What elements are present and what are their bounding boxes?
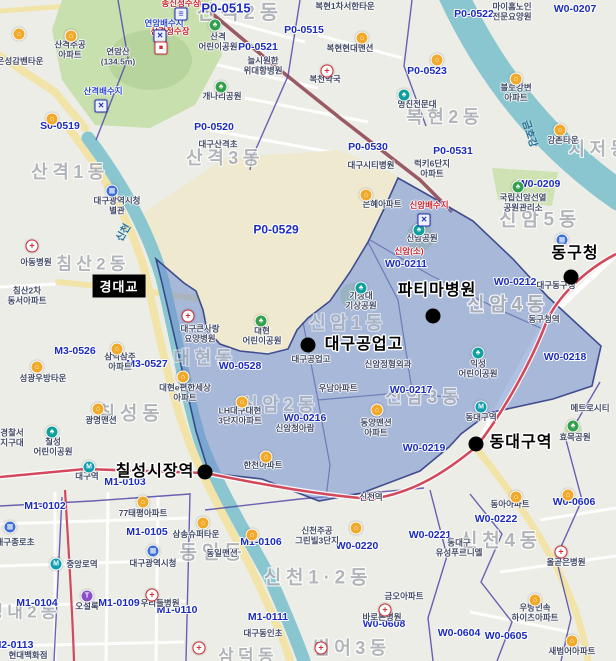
place-label: 신암청아람 — [275, 424, 314, 434]
metro-icon: M — [475, 401, 488, 414]
place-label: 마이홈노인 전문요양원 — [492, 2, 531, 21]
place-label: 익성 어린이공원 — [458, 359, 497, 378]
place-label: 영진전문대 — [397, 100, 436, 110]
district-label: 신암1동 — [309, 313, 387, 333]
apt-icon: ⌂ — [510, 73, 523, 86]
place-label: 동대구 유성푸르니엘 — [436, 538, 483, 557]
apt-icon: ⌂ — [137, 496, 150, 509]
label-layer: 산격2동산격1동산격3동복현2동지저동신암5동신암4동신암1동신암2동신암3동대… — [0, 0, 616, 661]
park-icon: ♣ — [567, 420, 580, 433]
apt-icon: ⌂ — [92, 403, 105, 416]
place-label: 우리들병원 — [140, 599, 179, 609]
place-label: 오설록 — [75, 602, 98, 612]
tpark-icon: ♣ — [46, 426, 59, 439]
place-label: 국립신암선열 공원관리소 — [500, 193, 547, 212]
place-label: 대현e편한세상 아파트 — [159, 383, 211, 402]
store-icon: T — [81, 590, 94, 603]
place-label: 신암(소) — [394, 247, 423, 257]
zone-code-label: W0-0219 — [403, 443, 446, 455]
levels-icon: ≡ — [175, 8, 188, 21]
zone-code-label: W0-0605 — [485, 631, 528, 643]
place-label: 대구시티병원 — [348, 161, 395, 171]
apt-icon: ⌂ — [197, 517, 210, 530]
zone-code-label: W0-0220 — [336, 541, 379, 553]
redbox-icon: ■ — [155, 42, 168, 55]
zone-code-label: M1-0105 — [126, 527, 167, 539]
med-icon: + — [315, 642, 328, 655]
zone-code-label: W0-0222 — [475, 514, 518, 526]
apt-icon: ⌂ — [360, 189, 373, 202]
place-label: 동양맨션 아파트 — [360, 418, 391, 437]
apt-icon: ⌂ — [350, 522, 363, 535]
zone-code-label: W0-0217 — [390, 385, 433, 397]
med-icon: + — [193, 642, 206, 655]
place-label: 산격 어린이공원 — [198, 32, 237, 51]
place-label: 성광우방타운 — [20, 374, 67, 384]
zone-code-label: P0-0522 — [454, 9, 494, 21]
place-label: 77태평아파트 — [119, 509, 168, 519]
apt-icon: ⌂ — [510, 491, 523, 504]
district-label: 삼덕동 — [218, 646, 278, 661]
place-label: 칠성 어린이공원 — [33, 437, 72, 456]
apt-icon: ⌂ — [260, 451, 273, 464]
place-label: 대현 어린이공원 — [242, 326, 281, 345]
metro-icon: M — [50, 558, 63, 571]
district-label: 산격3동 — [186, 148, 264, 168]
place-label: 신천역 — [359, 493, 382, 503]
poi-dot — [564, 270, 579, 285]
med-icon: + — [379, 604, 392, 617]
zone-code-label: M1-0111 — [248, 612, 288, 624]
place-label: 산격주공 아파트 — [54, 40, 85, 59]
place-label: 강촌타운 — [547, 136, 578, 146]
place-label: 대구광역시청 — [130, 559, 177, 569]
poi-dot — [426, 309, 441, 324]
med-icon: + — [26, 240, 39, 253]
poi-label: 칠성시장역 — [116, 463, 195, 481]
zone-code-label: P0-0529 — [253, 223, 298, 236]
apt-icon: ⌂ — [371, 404, 384, 417]
place-label: 삼익삼주 아파트 — [104, 352, 135, 371]
zone-code-label: P0-0530 — [348, 142, 388, 154]
gov-icon: ▦ — [147, 545, 160, 558]
park-icon: ♣ — [255, 315, 268, 328]
map-canvas[interactable]: 산격2동산격1동산격3동복현2동지저동신암5동신암4동신암1동신암2동신암3동대… — [0, 0, 616, 661]
place-label: 은혜아파트 — [362, 200, 401, 210]
place-label: 대구산격초 — [198, 140, 237, 150]
med-icon: + — [146, 589, 159, 602]
place-label: 럭키6단지 아파트 — [414, 159, 450, 178]
place-label: 대구광역시청 별관 — [94, 196, 141, 215]
apt-icon: ⌂ — [356, 32, 369, 45]
apt-icon: ⌂ — [111, 343, 124, 356]
xbox-icon: × — [418, 214, 431, 227]
district-label: 신암5동 — [499, 209, 581, 230]
place-label: 연암산 (134.5m) — [101, 47, 136, 66]
place-label: 광명맨션 — [85, 416, 116, 426]
zone-code-label: P0-0515 — [201, 2, 250, 17]
apt-icon: ⌂ — [246, 529, 259, 542]
place-label: 현대백화점 — [8, 651, 47, 661]
apt-icon: ⌂ — [554, 124, 567, 137]
metro-icon: M — [83, 461, 96, 474]
med-icon: + — [555, 546, 568, 559]
zone-code-label: W0-0528 — [219, 361, 262, 373]
place-label: 개나리공원 — [202, 92, 241, 102]
place-label: 신암정형외과 — [365, 360, 412, 370]
apt-icon: ⌂ — [31, 361, 44, 374]
zone-code-label: M3-0526 — [54, 346, 95, 358]
tpark-icon: ♣ — [472, 347, 485, 360]
apt-icon: ⌂ — [177, 371, 190, 384]
place-label: 대구역 — [75, 472, 98, 482]
gov-icon: ▦ — [106, 185, 119, 198]
place-label: 대구종로초 — [0, 538, 35, 548]
zone-code-label: P0-0521 — [238, 42, 278, 54]
zone-code-label: P0-0515 — [284, 25, 324, 37]
place-label: 신암배수지 — [409, 201, 448, 211]
poi-label: 동구청 — [551, 245, 598, 263]
poi-label: 동대구역 — [490, 434, 553, 452]
apt-icon: ⌂ — [13, 28, 26, 41]
tpark-icon: ♣ — [398, 89, 411, 102]
poi-dot — [301, 338, 316, 353]
apt-icon: ⌂ — [562, 489, 575, 502]
place-label: 산격배수지 — [83, 87, 122, 97]
apt-icon: ⌂ — [65, 30, 78, 43]
place-label: 동일맨션 — [206, 549, 237, 559]
place-label: 대구동인초 — [243, 629, 282, 639]
apt-icon: ⌂ — [46, 113, 59, 126]
xbox-icon: × — [95, 100, 108, 113]
poi-label: 파티마병원 — [398, 282, 477, 300]
place-label: 금오아파트 — [384, 592, 423, 602]
med-icon: + — [182, 310, 195, 323]
district-label: 복현2동 — [406, 107, 484, 127]
zone-code-label: W0-0212 — [494, 277, 537, 289]
park-icon: ♣ — [215, 81, 228, 94]
gov-icon: ▦ — [4, 521, 17, 534]
district-label: 신천1·2동 — [264, 567, 372, 588]
district-label: 산격1동 — [31, 162, 109, 182]
place-label: 올곧은병원 — [546, 558, 585, 568]
place-label: 동구청역 — [528, 315, 559, 325]
bridge-label: 경대교 — [93, 275, 146, 298]
park-icon: ♣ — [209, 19, 222, 32]
place-label: 복현1차서한타운 — [315, 2, 374, 12]
place-label: 대구큰사랑 요양병원 — [180, 324, 219, 343]
zone-code-label: W0-0218 — [544, 352, 587, 364]
district-label: 침산2동 — [56, 254, 129, 273]
zone-code-label: W0-0606 — [553, 497, 596, 509]
park-icon: ♣ — [512, 181, 525, 194]
place-label: 경찰서 지구대 — [0, 428, 23, 447]
place-label: 아동병원 — [20, 258, 51, 268]
zone-code-label: M1-0109 — [98, 598, 139, 610]
place-label: 연암배수지 — [144, 19, 183, 29]
zone-code-label: P0-0523 — [407, 66, 447, 78]
place-label: 동아아파트 — [490, 500, 529, 510]
place-label: 늘시원한 위대항병원 — [243, 56, 282, 75]
zone-code-label: M1-0102 — [24, 501, 65, 513]
water-label: 신천 — [115, 222, 134, 244]
place-label: 동대구역 — [465, 413, 496, 423]
place-label: 불로강변 아파트 — [500, 83, 531, 102]
place-label: 복현현대맨션 — [327, 44, 374, 54]
place-label: 중앙로역 — [66, 560, 97, 570]
zone-code-label: W0-0211 — [385, 259, 427, 271]
apt-icon: ⌂ — [566, 635, 579, 648]
zone-code-label: M1-0104 — [16, 598, 57, 610]
place-label: LH대구대현 3단지아파트 — [218, 406, 262, 425]
place-label: 대구공업고 — [291, 355, 330, 365]
poi-dot — [469, 437, 484, 452]
zone-code-label: P0-0520 — [194, 122, 234, 134]
poi-label: 대구공업고 — [325, 336, 404, 354]
place-label: 효목공원 — [559, 433, 590, 443]
place-label: 신천주공 그린빌3단지 — [295, 526, 339, 545]
tpark-icon: ♣ — [355, 282, 368, 295]
apt-icon: ⌂ — [236, 396, 249, 409]
place-label: 우남아파트 — [318, 384, 357, 394]
zone-code-label: P0-0531 — [433, 146, 473, 158]
place-label: 새범어아파트 — [549, 647, 596, 657]
zone-code-label: W0-0604 — [438, 628, 481, 640]
place-label: 침산2차 동서아파트 — [7, 286, 46, 305]
place-label: 메트로시티 — [570, 404, 609, 414]
poi-dot — [198, 465, 213, 480]
med-icon: + — [321, 65, 334, 78]
place-label: 은성감벤타운 — [0, 57, 43, 67]
district-label: 신암4동 — [467, 294, 549, 315]
zone-code-label: W0-0207 — [554, 4, 597, 16]
apt-icon: ⌂ — [529, 594, 542, 607]
apt-icon: ⌂ — [431, 54, 444, 67]
place-label: 삼송슈퍼타운 — [173, 530, 220, 540]
water-label: 금호강 — [519, 119, 538, 149]
